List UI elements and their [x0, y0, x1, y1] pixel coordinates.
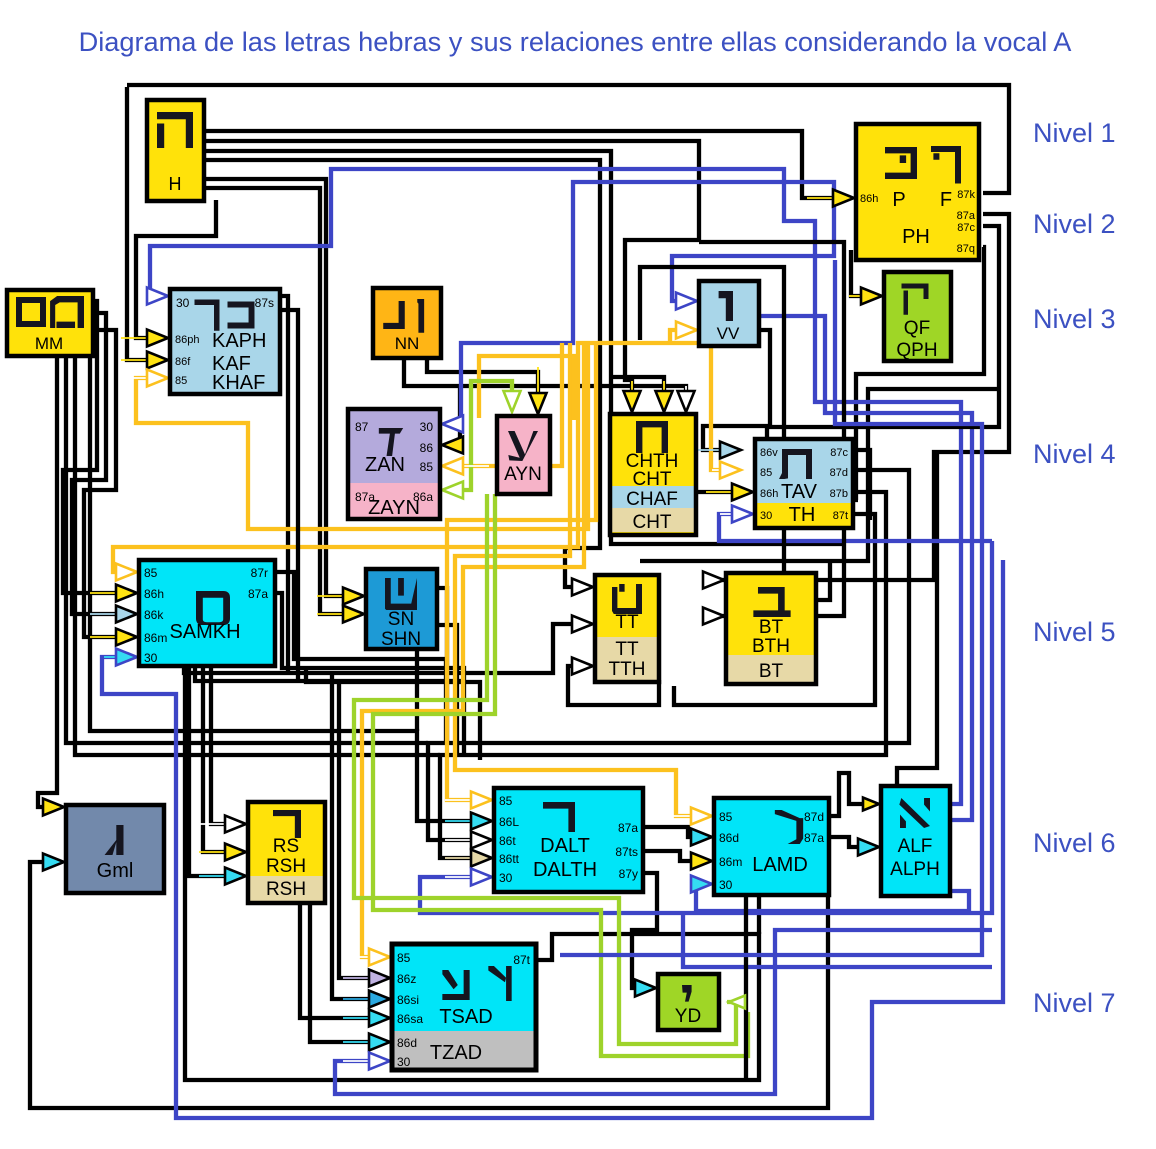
- svg-text:87a: 87a: [248, 587, 268, 601]
- svg-text:TAV: TAV: [781, 481, 818, 503]
- svg-text:TSAD: TSAD: [439, 1006, 492, 1028]
- svg-text:87: 87: [355, 420, 369, 434]
- svg-text:87a: 87a: [957, 210, 976, 222]
- svg-text:NN: NN: [395, 334, 420, 353]
- svg-text:86L: 86L: [499, 815, 519, 829]
- svg-text:87d: 87d: [830, 467, 848, 479]
- svg-text:SN: SN: [388, 609, 414, 630]
- svg-text:DALT: DALT: [540, 835, 590, 857]
- svg-text:87a: 87a: [618, 821, 638, 835]
- svg-text:86k: 86k: [144, 608, 164, 622]
- svg-text:85: 85: [397, 951, 411, 965]
- svg-text:86h: 86h: [144, 587, 164, 601]
- svg-text:Diagrama de las letras hebras: Diagrama de las letras hebras y sus rela…: [79, 26, 1073, 57]
- svg-text:86: 86: [420, 441, 434, 455]
- svg-text:SHN: SHN: [381, 629, 421, 650]
- svg-text:BTH: BTH: [752, 636, 790, 657]
- svg-text:CHAF: CHAF: [626, 489, 678, 510]
- svg-text:87r: 87r: [251, 566, 268, 580]
- svg-text:87c: 87c: [957, 222, 975, 234]
- svg-text:KAPH: KAPH: [212, 330, 266, 352]
- svg-text:86si: 86si: [397, 993, 419, 1007]
- svg-text:87t: 87t: [833, 510, 848, 522]
- svg-text:ZAN: ZAN: [365, 454, 405, 476]
- svg-text:30: 30: [420, 420, 434, 434]
- svg-text:30: 30: [176, 296, 190, 310]
- svg-text:Nivel 6: Nivel 6: [1033, 828, 1116, 858]
- svg-text:30: 30: [144, 651, 158, 665]
- svg-text:BT: BT: [759, 617, 784, 638]
- svg-text:RSH: RSH: [266, 879, 306, 900]
- svg-text:86tt: 86tt: [499, 852, 520, 866]
- svg-text:87a: 87a: [804, 831, 824, 845]
- svg-text:86z: 86z: [397, 972, 416, 986]
- svg-text:86d: 86d: [719, 831, 739, 845]
- svg-text:KHAF: KHAF: [212, 372, 265, 394]
- svg-text:86ph: 86ph: [175, 334, 199, 346]
- svg-text:87q: 87q: [957, 243, 975, 255]
- svg-text:86v: 86v: [760, 447, 778, 459]
- svg-text:TH: TH: [789, 504, 816, 526]
- svg-text:87ts: 87ts: [615, 845, 638, 859]
- svg-text:TT: TT: [615, 612, 639, 633]
- svg-text:87c: 87c: [830, 447, 848, 459]
- svg-text:LAMD: LAMD: [752, 854, 808, 876]
- svg-text:ALF: ALF: [898, 836, 933, 857]
- svg-text:87y: 87y: [619, 867, 638, 881]
- svg-text:86m: 86m: [144, 631, 167, 645]
- svg-text:RS: RS: [273, 836, 299, 857]
- svg-text:QF: QF: [904, 318, 930, 339]
- svg-text:VV: VV: [717, 324, 740, 343]
- svg-text:85: 85: [760, 467, 772, 479]
- svg-text:QPH: QPH: [896, 340, 937, 361]
- svg-text:86f: 86f: [175, 356, 191, 368]
- svg-text:86h: 86h: [860, 193, 878, 205]
- svg-text:TTH: TTH: [609, 659, 646, 680]
- svg-text:30: 30: [719, 878, 733, 892]
- svg-text:87b: 87b: [830, 488, 848, 500]
- svg-text:86d: 86d: [397, 1036, 417, 1050]
- svg-text:87k: 87k: [957, 189, 975, 201]
- svg-text:85: 85: [719, 810, 733, 824]
- svg-text:86m: 86m: [719, 855, 742, 869]
- svg-text:PH: PH: [902, 226, 930, 248]
- svg-text:ZAYN: ZAYN: [368, 497, 420, 519]
- svg-text:AYN: AYN: [504, 464, 542, 485]
- svg-text:P: P: [892, 189, 905, 211]
- svg-text:TT: TT: [615, 639, 639, 660]
- svg-text:30: 30: [499, 871, 513, 885]
- svg-text:Nivel 2: Nivel 2: [1033, 209, 1116, 239]
- svg-text:87t: 87t: [513, 953, 530, 967]
- svg-text:CHT: CHT: [632, 512, 671, 533]
- svg-text:86t: 86t: [499, 834, 516, 848]
- svg-text:Nivel 4: Nivel 4: [1033, 439, 1116, 469]
- svg-text:YD: YD: [675, 1006, 701, 1027]
- svg-text:86h: 86h: [760, 488, 778, 500]
- svg-text:RSH: RSH: [266, 856, 306, 877]
- svg-text:85: 85: [499, 794, 513, 808]
- svg-text:Nivel 5: Nivel 5: [1033, 617, 1116, 647]
- svg-text:F: F: [940, 189, 952, 211]
- svg-text:Nivel 7: Nivel 7: [1033, 988, 1116, 1018]
- svg-text:ALPH: ALPH: [890, 859, 940, 880]
- svg-text:85: 85: [175, 375, 187, 387]
- svg-text:CHT: CHT: [632, 469, 671, 490]
- svg-text:87s: 87s: [255, 296, 274, 310]
- svg-text:85: 85: [144, 566, 158, 580]
- svg-text:Nivel 3: Nivel 3: [1033, 304, 1116, 334]
- svg-text:87d: 87d: [804, 810, 824, 824]
- svg-text:30: 30: [397, 1055, 411, 1069]
- svg-text:MM: MM: [35, 334, 63, 353]
- svg-text:Nivel 1: Nivel 1: [1033, 118, 1116, 148]
- svg-text:TZAD: TZAD: [430, 1042, 482, 1064]
- svg-text:BT: BT: [759, 661, 784, 682]
- svg-text:86sa: 86sa: [397, 1012, 423, 1026]
- svg-text:Gml: Gml: [97, 860, 134, 882]
- svg-text:SAMKH: SAMKH: [169, 621, 240, 643]
- svg-text:30: 30: [760, 510, 772, 522]
- svg-text:85: 85: [420, 460, 434, 474]
- svg-text:H: H: [169, 174, 182, 194]
- svg-text:DALTH: DALTH: [533, 859, 597, 881]
